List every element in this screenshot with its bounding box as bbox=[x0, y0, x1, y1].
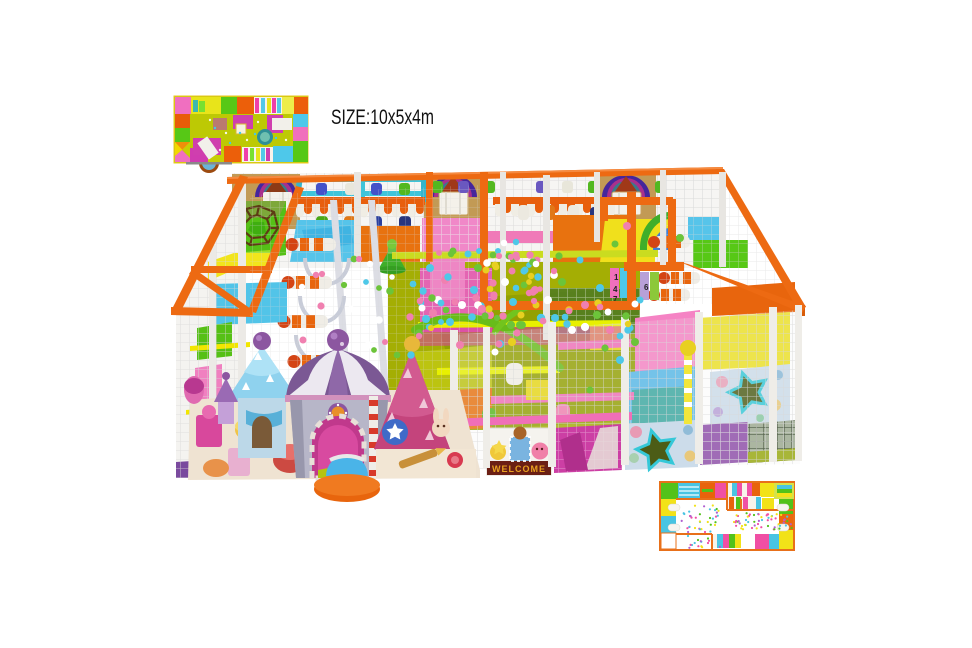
svg-text:SIZE:10x5x4m: SIZE:10x5x4m bbox=[331, 106, 434, 129]
svg-text:WELCOME: WELCOME bbox=[492, 464, 546, 474]
svg-text:6: 6 bbox=[644, 283, 649, 292]
svg-text:1: 1 bbox=[614, 273, 619, 282]
svg-text:4: 4 bbox=[613, 285, 618, 294]
